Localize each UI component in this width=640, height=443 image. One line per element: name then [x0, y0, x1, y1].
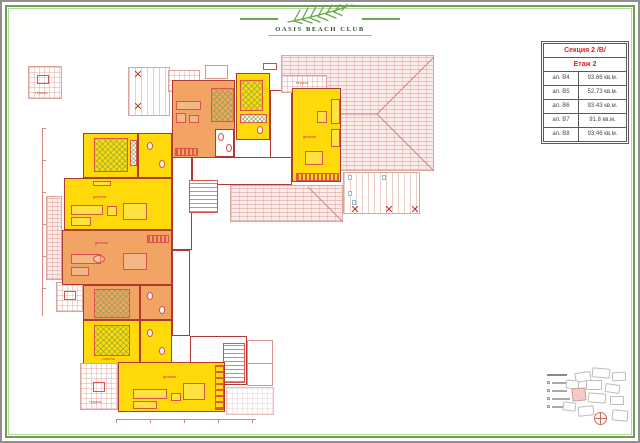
column-x-marker: [412, 206, 418, 212]
terrace-strip-left: [46, 196, 62, 280]
tv-stand: [93, 181, 111, 186]
bed: [240, 80, 263, 111]
legend-swatch: [547, 389, 550, 392]
sofa: [71, 267, 89, 276]
terrace-table: [93, 382, 105, 392]
kitchen-counter: [175, 148, 198, 156]
building-outline: [612, 409, 629, 421]
building-outline: [586, 380, 602, 390]
column-marker: [348, 175, 352, 180]
apartment-b5-studio: [172, 80, 235, 158]
building-outline-current: [571, 387, 586, 401]
sink: [159, 347, 165, 355]
sink: [226, 144, 232, 152]
legend-title-bar: [547, 374, 567, 376]
sofa: [331, 99, 340, 124]
stairwell-main: [189, 180, 218, 213]
bathroom: [215, 129, 234, 157]
toilet: [218, 133, 224, 141]
armchair: [176, 113, 186, 123]
building-outline: [588, 392, 607, 403]
bathrooms-west-upper: [138, 133, 172, 178]
legend-swatch: [547, 397, 550, 400]
sofa: [133, 389, 167, 399]
stairs-south: [223, 343, 245, 383]
legend-text-bar: [552, 390, 567, 392]
living-room-b4: дневна: [64, 178, 172, 230]
toilet: [147, 292, 153, 300]
bed: [94, 138, 128, 172]
bed: [94, 325, 130, 356]
site-key-plan: [543, 366, 635, 428]
dimension-tag: [263, 63, 277, 70]
column-x-marker: [386, 206, 392, 212]
column-marker: [382, 175, 386, 180]
room-label: тераса: [35, 91, 48, 95]
bed: [94, 289, 130, 318]
room-label: дневна: [95, 241, 108, 245]
dining-table: [123, 203, 147, 220]
sink: [159, 306, 165, 314]
living-room-b6: дневна: [292, 88, 341, 182]
toilet: [147, 142, 153, 150]
room-label: дневна: [303, 135, 316, 139]
coffee-table: [171, 393, 181, 401]
terrace-table: [37, 75, 49, 84]
terrace-table: [64, 291, 76, 300]
bathrooms-south-orange: [140, 285, 172, 320]
compass-icon: [594, 412, 607, 425]
sofa: [331, 129, 340, 147]
room-label: тераса: [89, 400, 102, 404]
room-label: дневна: [163, 375, 176, 379]
kitchen-counter: [147, 235, 169, 243]
dimension-line-bottom: [116, 419, 256, 423]
wardrobe: [130, 140, 137, 166]
building-outline: [604, 383, 620, 394]
bed: [211, 88, 234, 122]
corridor-low: [172, 250, 190, 336]
dining-table: [183, 383, 205, 400]
dining-table: [305, 151, 323, 165]
bedroom-south-yellow: спалня: [83, 320, 140, 364]
bedroom-top: [236, 73, 270, 140]
building-outline: [610, 396, 624, 405]
legend-swatch: [547, 381, 550, 384]
room-label: спалня: [102, 357, 115, 361]
terrace-bottom-right: [226, 387, 274, 415]
armchair: [107, 206, 117, 216]
corridor-vertical: [270, 90, 292, 158]
room-label: тераса: [296, 81, 309, 85]
column-marker: [348, 191, 352, 196]
drawing-sheet: OASIS BEACH CLUB Секция 2 /В/ Етаж 2 ап.…: [0, 0, 640, 443]
bathrooms-south-yellow: [140, 320, 172, 364]
coffee-table: [189, 115, 199, 123]
sofa: [176, 101, 201, 110]
pergola-top-left: [128, 67, 170, 116]
pergola-right: [343, 172, 420, 214]
column-x-marker: [135, 71, 141, 77]
terrace-left-small: [56, 282, 83, 312]
sofa: [71, 217, 91, 226]
legend-swatch: [547, 405, 550, 408]
kitchen-strip: [215, 365, 224, 410]
bedroom-west: [83, 133, 138, 178]
toilet: [147, 329, 153, 337]
terrace-top-left: тераса: [28, 66, 62, 99]
sink: [257, 126, 263, 134]
wardrobe: [240, 114, 267, 123]
bedroom-south-orange: [83, 285, 140, 320]
column-marker: [352, 200, 356, 205]
building-outline: [612, 372, 627, 382]
living-room-b7: дневна: [118, 362, 225, 412]
coffee-table: [93, 255, 105, 263]
sofa: [133, 401, 157, 409]
building-outline: [578, 405, 595, 417]
kitchen-counter: [296, 173, 339, 181]
room-label: дневна: [93, 195, 106, 199]
rooms-right-of-stairs: [247, 340, 273, 386]
column-x-marker: [135, 103, 141, 109]
sofa: [71, 205, 103, 215]
building-outline: [592, 367, 611, 379]
sink: [159, 160, 165, 168]
terrace-bottom-left: тераса: [80, 363, 118, 410]
living-room-b8: дневна: [62, 230, 172, 285]
room-divider: [248, 363, 272, 364]
column-x-marker: [352, 206, 358, 212]
dining-table: [123, 253, 147, 270]
balcony-top-small: [205, 65, 228, 79]
roof-corridor: [230, 185, 343, 222]
coffee-table: [317, 111, 327, 123]
building-outline: [563, 401, 577, 412]
legend-text-bar: [552, 398, 570, 400]
